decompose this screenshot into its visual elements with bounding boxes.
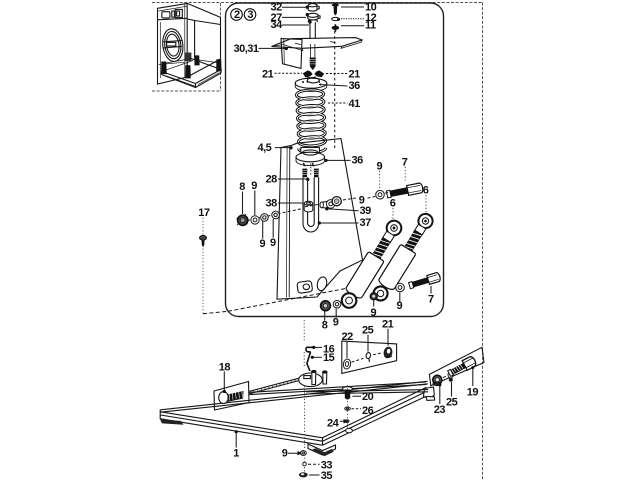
svg-text:1: 1 bbox=[233, 447, 239, 459]
svg-text:9: 9 bbox=[333, 316, 339, 328]
svg-text:4,5: 4,5 bbox=[258, 142, 272, 154]
svg-text:9: 9 bbox=[260, 238, 266, 250]
svg-text:22: 22 bbox=[342, 331, 354, 343]
svg-text:9: 9 bbox=[282, 448, 288, 460]
svg-text:28: 28 bbox=[266, 173, 278, 185]
svg-text:20: 20 bbox=[362, 391, 374, 403]
svg-text:30,31: 30,31 bbox=[234, 43, 259, 55]
svg-text:35: 35 bbox=[321, 470, 333, 480]
svg-text:6: 6 bbox=[390, 198, 396, 210]
svg-text:25: 25 bbox=[362, 324, 374, 336]
svg-text:21: 21 bbox=[382, 318, 394, 330]
svg-text:6: 6 bbox=[423, 185, 429, 197]
svg-text:9: 9 bbox=[397, 300, 403, 312]
svg-text:26: 26 bbox=[362, 405, 374, 417]
svg-text:41: 41 bbox=[349, 98, 361, 110]
svg-text:9: 9 bbox=[270, 237, 276, 249]
svg-text:7: 7 bbox=[428, 294, 434, 306]
svg-text:11: 11 bbox=[365, 20, 376, 32]
svg-text:36: 36 bbox=[352, 154, 364, 166]
svg-text:8: 8 bbox=[322, 319, 328, 331]
svg-text:37: 37 bbox=[360, 217, 372, 229]
svg-text:8: 8 bbox=[239, 181, 245, 193]
svg-text:9: 9 bbox=[371, 307, 377, 319]
svg-text:21: 21 bbox=[262, 68, 274, 80]
svg-text:24: 24 bbox=[327, 417, 340, 429]
svg-text:36: 36 bbox=[349, 80, 361, 92]
svg-text:15: 15 bbox=[323, 352, 335, 364]
svg-text:19: 19 bbox=[467, 386, 479, 398]
svg-text:17: 17 bbox=[198, 207, 210, 219]
svg-text:21: 21 bbox=[349, 68, 361, 80]
svg-text:3: 3 bbox=[247, 9, 253, 21]
svg-text:39: 39 bbox=[360, 205, 372, 217]
svg-text:38: 38 bbox=[266, 197, 278, 209]
svg-text:34: 34 bbox=[271, 19, 284, 31]
svg-text:25: 25 bbox=[446, 396, 458, 408]
svg-text:23: 23 bbox=[434, 404, 446, 416]
svg-text:9: 9 bbox=[251, 180, 257, 192]
svg-text:2: 2 bbox=[234, 9, 240, 21]
